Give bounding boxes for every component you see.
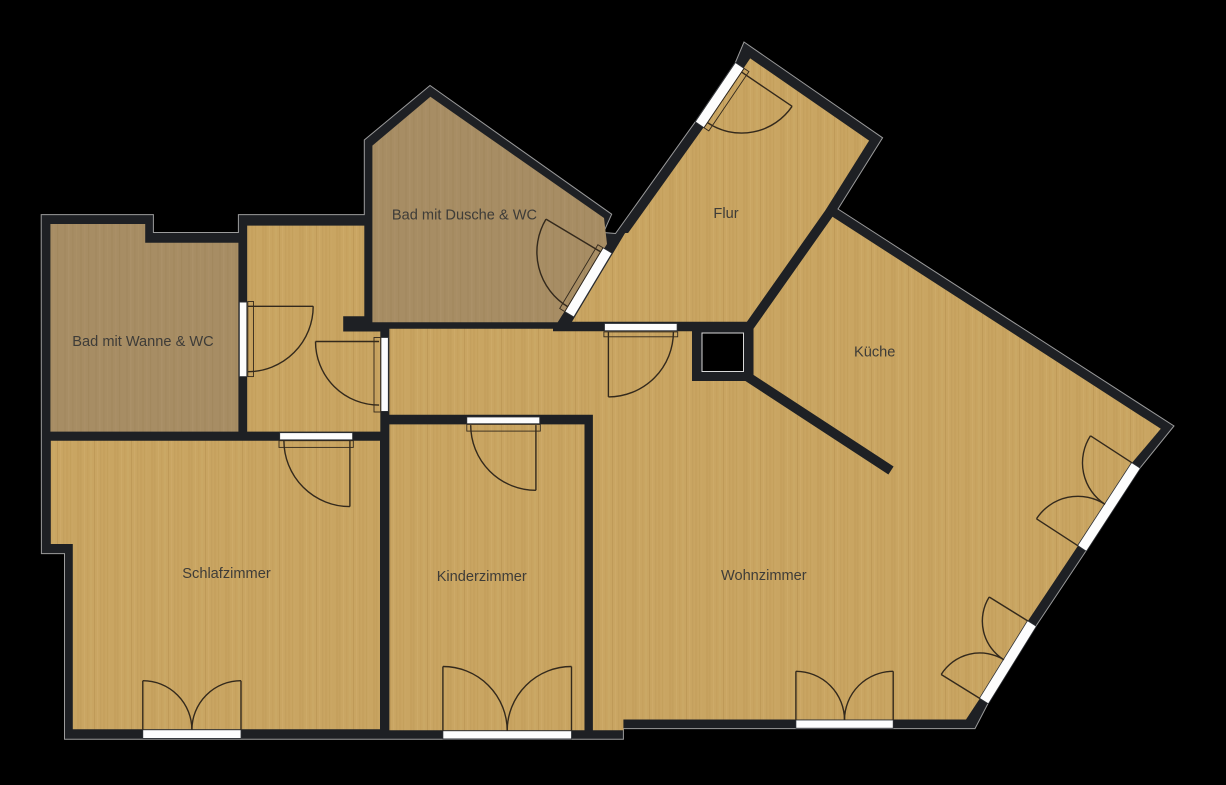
svg-text:Küche: Küche xyxy=(854,344,895,360)
svg-text:Flur: Flur xyxy=(713,206,738,222)
svg-text:Bad mit Dusche & WC: Bad mit Dusche & WC xyxy=(392,208,537,224)
svg-text:Kinderzimmer: Kinderzimmer xyxy=(437,569,527,585)
svg-text:Wohnzimmer: Wohnzimmer xyxy=(721,568,807,584)
svg-text:Schlafzimmer: Schlafzimmer xyxy=(182,566,271,582)
svg-text:Bad mit Wanne & WC: Bad mit Wanne & WC xyxy=(72,334,213,350)
